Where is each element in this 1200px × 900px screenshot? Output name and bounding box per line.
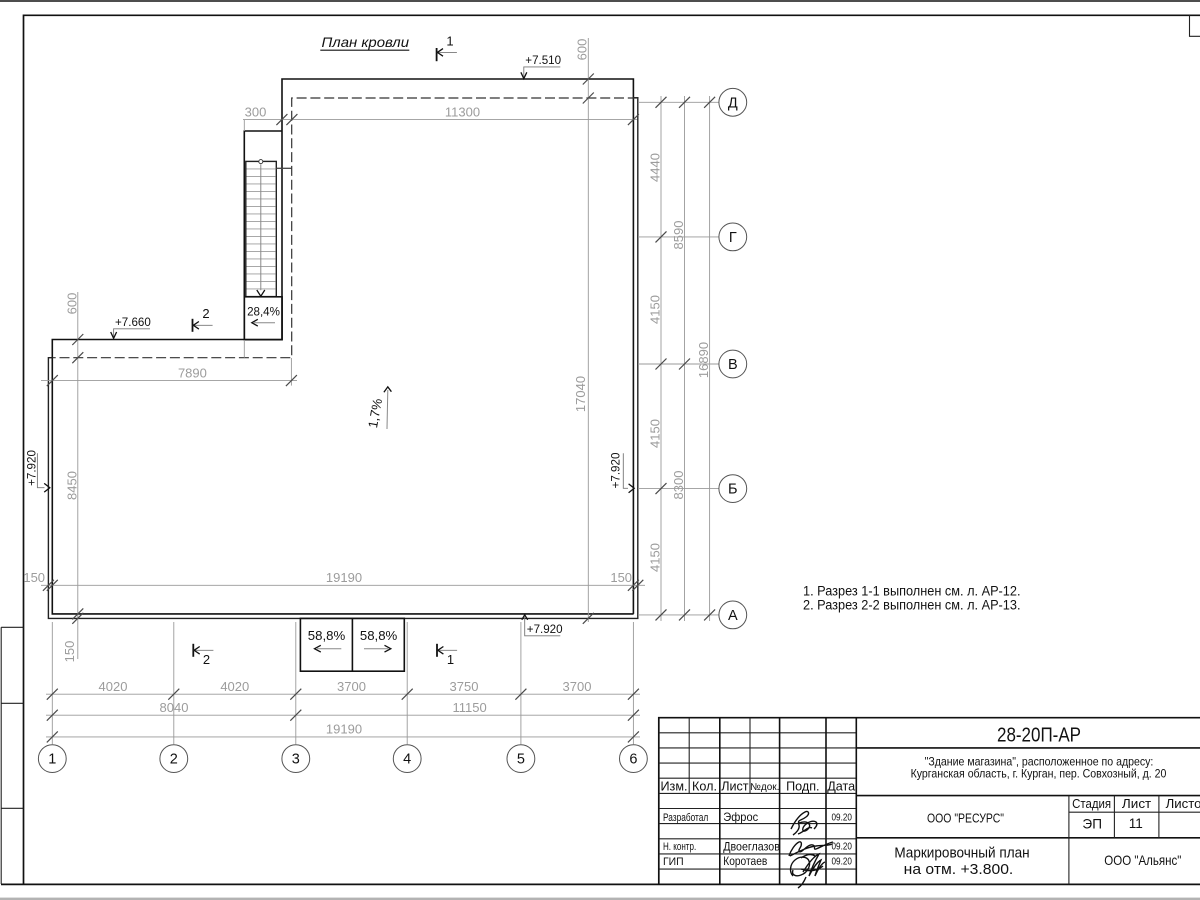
svg-text:28-20П-АР: 28-20П-АР bbox=[997, 724, 1081, 746]
svg-text:План кровли: План кровли bbox=[322, 34, 410, 50]
svg-text:19190: 19190 bbox=[326, 570, 362, 585]
svg-text:300: 300 bbox=[245, 105, 267, 120]
svg-text:+7.920: +7.920 bbox=[26, 450, 39, 486]
svg-text:4: 4 bbox=[403, 752, 411, 768]
svg-text:600: 600 bbox=[65, 293, 80, 315]
svg-text:Лист: Лист bbox=[721, 780, 749, 794]
svg-text:Двоеглазов: Двоеглазов bbox=[723, 839, 780, 853]
svg-text:3: 3 bbox=[292, 752, 300, 768]
svg-text:Кол.: Кол. bbox=[692, 780, 717, 794]
svg-text:Листов: Листов bbox=[1166, 796, 1200, 811]
svg-text:ООО "РЕСУРС": ООО "РЕСУРС" bbox=[927, 811, 1004, 826]
svg-text:2: 2 bbox=[203, 652, 210, 667]
svg-text:Подп.: Подп. bbox=[786, 780, 819, 794]
svg-text:Стадия: Стадия bbox=[1072, 796, 1111, 811]
svg-text:2. Разрез 2-2 выполнен см. л.: 2. Разрез 2-2 выполнен см. л. АР-13. bbox=[803, 598, 1021, 613]
svg-text:3700: 3700 bbox=[337, 679, 366, 694]
svg-text:Д: Д bbox=[728, 95, 738, 111]
svg-text:В: В bbox=[728, 357, 738, 373]
svg-text:ЭП: ЭП bbox=[1082, 817, 1102, 832]
svg-text:+7.660: +7.660 bbox=[115, 316, 151, 329]
svg-text:4150: 4150 bbox=[648, 543, 663, 572]
svg-text:1: 1 bbox=[446, 34, 453, 49]
svg-text:4020: 4020 bbox=[220, 679, 249, 694]
svg-text:4440: 4440 bbox=[648, 153, 663, 182]
svg-text:Маркировочный план: Маркировочный план bbox=[894, 846, 1029, 862]
svg-text:11150: 11150 bbox=[452, 700, 486, 715]
svg-text:Н. контр.: Н. контр. bbox=[663, 841, 696, 853]
svg-text:ГИП: ГИП bbox=[663, 856, 684, 868]
svg-text:58,8%: 58,8% bbox=[360, 628, 398, 643]
svg-text:28,4%: 28,4% bbox=[247, 306, 280, 319]
svg-text:150: 150 bbox=[62, 641, 77, 663]
svg-text:8590: 8590 bbox=[671, 221, 686, 250]
svg-text:16890: 16890 bbox=[696, 342, 711, 378]
svg-text:600: 600 bbox=[575, 39, 590, 61]
svg-text:1: 1 bbox=[447, 652, 454, 667]
svg-text:Коротаев: Коротаев bbox=[723, 854, 767, 868]
svg-text:Б: Б bbox=[728, 482, 738, 498]
svg-text:+7.920: +7.920 bbox=[527, 623, 563, 636]
svg-text:6: 6 bbox=[629, 752, 637, 768]
svg-text:Г: Г bbox=[729, 230, 737, 246]
svg-text:2: 2 bbox=[170, 752, 178, 768]
svg-text:+7.920: +7.920 bbox=[610, 453, 623, 489]
svg-text:7890: 7890 bbox=[178, 366, 207, 381]
svg-text:150: 150 bbox=[610, 570, 632, 585]
svg-text:4150: 4150 bbox=[648, 295, 663, 324]
svg-text:19190: 19190 bbox=[326, 722, 362, 737]
svg-text:09.20: 09.20 bbox=[832, 842, 853, 853]
svg-text:Дата: Дата bbox=[827, 780, 855, 794]
svg-text:№док.: №док. bbox=[750, 782, 779, 793]
svg-text:Изм.: Изм. bbox=[661, 780, 688, 794]
svg-text:1. Разрез 1-1 выполнен см. л.: 1. Разрез 1-1 выполнен см. л. АР-12. bbox=[803, 584, 1021, 599]
svg-text:3700: 3700 bbox=[563, 679, 592, 694]
svg-text:+7.510: +7.510 bbox=[525, 54, 561, 67]
svg-text:4150: 4150 bbox=[648, 419, 663, 448]
svg-text:17040: 17040 bbox=[573, 376, 588, 412]
svg-text:Разработал: Разработал bbox=[663, 812, 708, 824]
svg-text:11300: 11300 bbox=[445, 105, 480, 120]
svg-text:ООО "Альянс": ООО "Альянс" bbox=[1104, 853, 1181, 868]
svg-text:1: 1 bbox=[48, 752, 56, 768]
svg-text:11: 11 bbox=[1129, 816, 1143, 831]
svg-text:09.20: 09.20 bbox=[832, 857, 853, 868]
svg-text:3750: 3750 bbox=[450, 679, 479, 694]
svg-text:58,8%: 58,8% bbox=[308, 628, 346, 643]
svg-text:150: 150 bbox=[23, 570, 45, 585]
svg-text:2: 2 bbox=[202, 306, 209, 321]
svg-text:Эфрос: Эфрос bbox=[723, 810, 758, 824]
svg-text:Курганская область, г. Курган,: Курганская область, г. Курган, пер. Совх… bbox=[911, 767, 1167, 781]
svg-text:Лист: Лист bbox=[1122, 796, 1151, 811]
svg-text:09.20: 09.20 bbox=[832, 812, 853, 823]
svg-text:8300: 8300 bbox=[671, 471, 686, 500]
svg-text:1,7%: 1,7% bbox=[365, 397, 385, 429]
svg-text:8040: 8040 bbox=[160, 700, 189, 715]
svg-text:на отм. +3.800.: на отм. +3.800. bbox=[904, 862, 1014, 878]
svg-text:4020: 4020 bbox=[99, 679, 128, 694]
svg-text:8450: 8450 bbox=[65, 471, 80, 500]
svg-text:А: А bbox=[728, 608, 738, 624]
svg-text:5: 5 bbox=[517, 752, 525, 768]
